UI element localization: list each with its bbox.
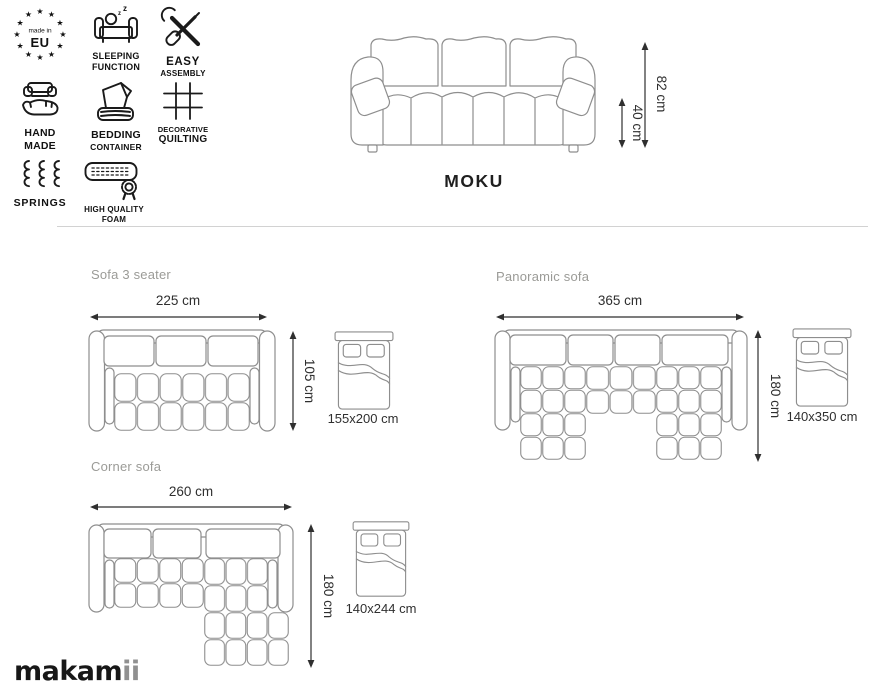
top-view-drawing xyxy=(495,330,747,460)
svg-text:z: z xyxy=(123,4,127,13)
springs-icon xyxy=(17,156,63,194)
feature-made-in-eu: ★★ ★★ ★★ ★★ ★★ ★★ made in EU xyxy=(6,6,74,64)
width-dimension: 225 cm xyxy=(90,293,267,320)
feature-label: DECORATIVE QUILTING xyxy=(158,125,209,146)
made-in-label: made in xyxy=(28,28,52,35)
feature-springs: SPRINGS xyxy=(6,156,74,210)
mattress-icon xyxy=(334,330,394,411)
hand-made-icon xyxy=(17,80,63,124)
mattress-icon xyxy=(352,520,410,598)
feature-sleeping-function: z z SLEEPING FUNCTION xyxy=(78,4,154,73)
depth-label: 105 cm xyxy=(302,359,317,403)
seat-base xyxy=(380,93,566,146)
variant-title-panoramic-sofa: Panoramic sofa xyxy=(496,269,589,284)
sleeping-area-label: 155x200 cm xyxy=(313,411,413,426)
svg-text:★: ★ xyxy=(56,42,63,51)
width-dimension: 365 cm xyxy=(496,293,744,320)
sleeping-function-icon: z z xyxy=(92,4,140,48)
product-spec-sheet: ★★ ★★ ★★ ★★ ★★ ★★ made in EU z z SLEEPIN… xyxy=(0,0,870,700)
feature-label: SLEEPING FUNCTION xyxy=(92,51,140,73)
brand-logo-prefix: makam xyxy=(14,656,122,687)
svg-text:★: ★ xyxy=(36,53,43,62)
section-divider xyxy=(57,226,868,227)
svg-text:★: ★ xyxy=(17,42,24,51)
feature-easy-assembly: EASY ASSEMBLY xyxy=(148,6,218,79)
svg-text:★: ★ xyxy=(59,30,66,39)
depth-dimension: 180 cm xyxy=(755,330,783,462)
width-label: 225 cm xyxy=(156,293,200,308)
feature-hand-made: HAND MADE xyxy=(6,80,74,153)
corner-sofa-top-view: 260 cm 180 cm xyxy=(88,482,336,672)
bedding-container-icon xyxy=(93,80,139,126)
svg-text:z: z xyxy=(118,11,121,17)
feature-label: HIGH QUALITY FOAM xyxy=(84,205,144,225)
feature-label: SPRINGS xyxy=(14,197,67,210)
mattress-icon xyxy=(792,327,852,408)
product-name: MOKU xyxy=(374,171,574,192)
svg-text:★: ★ xyxy=(56,19,63,28)
eu-label: EU xyxy=(30,35,49,50)
svg-text:★: ★ xyxy=(25,10,32,19)
width-dimension: 260 cm xyxy=(90,484,292,510)
easy-assembly-icon xyxy=(160,6,206,52)
brand-logo-suffix: ii xyxy=(122,656,140,687)
total-height-label: 82 cm xyxy=(654,76,669,113)
panoramic-sofa-top-view: 365 cm 180 cm xyxy=(494,290,786,468)
sleeping-area-label: 140x244 cm xyxy=(331,601,431,616)
svg-text:★: ★ xyxy=(36,7,43,16)
decorative-quilting-icon xyxy=(160,80,206,122)
seat-height-dimension: 40 cm xyxy=(619,98,645,148)
made-in-eu-icon: ★★ ★★ ★★ ★★ ★★ ★★ made in EU xyxy=(10,6,70,64)
svg-text:★: ★ xyxy=(13,30,20,39)
sofa-front-view-drawing: 40 cm 82 cm xyxy=(338,26,668,158)
variant-title-sofa-3-seater: Sofa 3 seater xyxy=(91,267,171,282)
variant-title-corner-sofa: Corner sofa xyxy=(91,459,161,474)
sleeping-area-label: 140x350 cm xyxy=(772,409,870,424)
depth-dimension: 180 cm xyxy=(308,524,336,668)
svg-text:★: ★ xyxy=(48,50,55,59)
feature-label: BEDDING CONTAINER xyxy=(90,129,142,152)
feature-decorative-quilting: DECORATIVE QUILTING xyxy=(148,80,218,146)
feature-high-quality-foam: HIGH QUALITY FOAM xyxy=(70,156,158,225)
width-label: 365 cm xyxy=(598,293,642,308)
feature-label: HAND MADE xyxy=(24,127,56,153)
svg-text:★: ★ xyxy=(25,50,32,59)
brand-logo: makamii xyxy=(14,656,140,687)
high-quality-foam-icon xyxy=(84,156,144,202)
svg-text:★: ★ xyxy=(17,19,24,28)
top-view-drawing xyxy=(89,330,275,431)
top-view-drawing xyxy=(89,524,293,666)
svg-text:★: ★ xyxy=(48,10,55,19)
feature-label: EASY ASSEMBLY xyxy=(160,55,205,79)
sofa-feet xyxy=(368,145,578,152)
feature-bedding-container: BEDDING CONTAINER xyxy=(76,80,156,152)
seat-height-label: 40 cm xyxy=(630,105,645,142)
back-cushions xyxy=(371,37,576,86)
width-label: 260 cm xyxy=(169,484,213,499)
sofa-3-seater-top-view: 225 cm 105 cm xyxy=(88,290,313,438)
